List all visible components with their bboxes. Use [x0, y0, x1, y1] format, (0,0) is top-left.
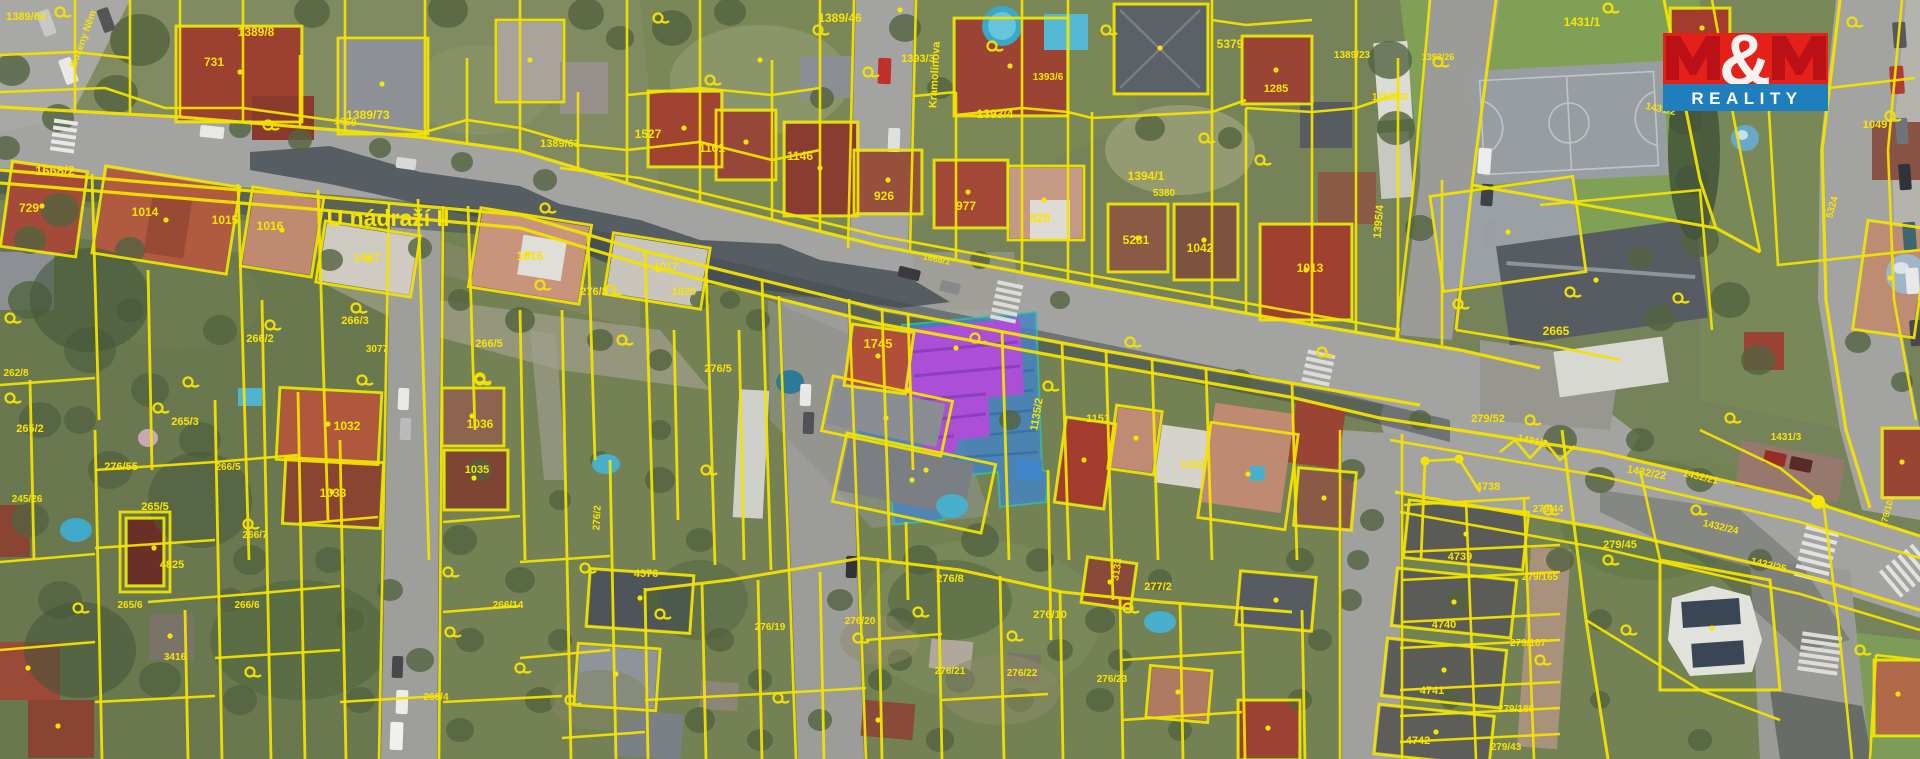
svg-text:1161: 1161	[699, 141, 725, 155]
svg-text:1015: 1015	[517, 249, 544, 263]
svg-text:1033: 1033	[320, 486, 347, 500]
svg-text:266/4: 266/4	[423, 692, 448, 703]
svg-text:276/22: 276/22	[1007, 668, 1038, 679]
svg-text:1049: 1049	[1863, 119, 1887, 131]
svg-text:1389/8: 1389/8	[238, 25, 275, 39]
svg-text:262/8: 262/8	[3, 368, 28, 379]
svg-text:265/6: 265/6	[117, 600, 142, 611]
svg-text:1394/1: 1394/1	[1128, 169, 1165, 183]
svg-text:926: 926	[874, 189, 894, 203]
svg-text:1389/23: 1389/23	[1334, 50, 1371, 61]
svg-text:1015: 1015	[212, 213, 239, 227]
svg-text:977: 977	[956, 199, 976, 213]
svg-text:1020: 1020	[672, 286, 696, 298]
svg-text:276/2: 276/2	[591, 505, 603, 531]
svg-text:REALITY: REALITY	[1691, 89, 1802, 108]
svg-text:266/7: 266/7	[242, 530, 267, 541]
svg-text:4376: 4376	[634, 568, 658, 580]
svg-text:1389/33: 1389/33	[1372, 92, 1409, 103]
svg-text:279/44: 279/44	[1533, 504, 1564, 515]
svg-text:1017: 1017	[654, 261, 678, 273]
svg-text:4740: 4740	[1432, 619, 1456, 631]
svg-text:279/165: 279/165	[1522, 572, 1559, 583]
svg-text:1389/64: 1389/64	[6, 11, 47, 23]
svg-text:277/2: 277/2	[1144, 581, 1172, 593]
svg-text:1393/26: 1393/26	[1422, 52, 1455, 62]
svg-text:1668/2: 1668/2	[35, 163, 75, 178]
svg-text:276/8: 276/8	[936, 573, 964, 585]
svg-text:1016: 1016	[257, 219, 284, 233]
svg-text:3416: 3416	[164, 652, 187, 663]
svg-text:1013: 1013	[1297, 261, 1324, 275]
svg-text:276/5: 276/5	[704, 363, 732, 375]
svg-text:266/3: 266/3	[341, 315, 369, 327]
svg-text:828: 828	[1030, 211, 1050, 225]
svg-text:1431/3: 1431/3	[1771, 432, 1802, 443]
svg-text:1393/6: 1393/6	[1033, 72, 1064, 83]
svg-text:1389/46: 1389/46	[818, 11, 862, 25]
svg-text:279/45: 279/45	[1603, 539, 1637, 551]
svg-text:U nádraží II: U nádraží II	[327, 205, 450, 231]
svg-text:245/26: 245/26	[12, 494, 43, 505]
svg-text:1745: 1745	[864, 336, 893, 351]
svg-text:276/3: 276/3	[580, 286, 608, 298]
svg-text:1389/63: 1389/63	[540, 138, 580, 150]
svg-text:1285: 1285	[1264, 83, 1288, 95]
svg-text:1042: 1042	[1187, 241, 1214, 255]
svg-text:276/19: 276/19	[755, 622, 786, 633]
svg-text:276/10: 276/10	[1033, 609, 1067, 621]
svg-text:1151: 1151	[1086, 413, 1110, 425]
svg-text:4825: 4825	[160, 559, 184, 571]
svg-text:1035: 1035	[465, 464, 489, 476]
svg-text:1032: 1032	[334, 419, 361, 433]
svg-text:1527: 1527	[635, 127, 662, 141]
svg-text:4742: 4742	[1406, 735, 1430, 747]
svg-text:731: 731	[204, 55, 224, 69]
svg-text:5281: 5281	[1123, 233, 1150, 247]
svg-text:1152: 1152	[1180, 459, 1204, 471]
svg-text:276/55: 276/55	[104, 461, 138, 473]
svg-text:266/6: 266/6	[234, 600, 259, 611]
svg-text:4739: 4739	[1448, 551, 1472, 563]
svg-text:279/189: 279/189	[1498, 704, 1535, 715]
svg-text:265/3: 265/3	[171, 416, 199, 428]
svg-text:4738: 4738	[1476, 481, 1500, 493]
svg-text:266/14: 266/14	[493, 600, 524, 611]
svg-text:265/5: 265/5	[141, 501, 169, 513]
svg-text:4741: 4741	[1420, 685, 1444, 697]
svg-text:5380: 5380	[1153, 188, 1176, 199]
svg-text:266/5: 266/5	[215, 462, 240, 473]
svg-text:1036: 1036	[467, 417, 494, 431]
svg-text:5379: 5379	[1217, 37, 1244, 51]
svg-text:279/187: 279/187	[1510, 638, 1547, 649]
svg-text:1393/4: 1393/4	[977, 107, 1014, 121]
svg-text:1146: 1146	[787, 149, 813, 163]
svg-text:276/20: 276/20	[845, 616, 876, 627]
svg-text:265/2: 265/2	[16, 423, 44, 435]
svg-text:729: 729	[19, 201, 39, 215]
svg-text:266/5: 266/5	[475, 338, 503, 350]
svg-text:3077: 3077	[366, 344, 389, 355]
svg-text:266/2: 266/2	[246, 333, 274, 345]
svg-text:279/43: 279/43	[1491, 742, 1522, 753]
svg-text:1017: 1017	[354, 251, 381, 265]
svg-text:279/52: 279/52	[1471, 413, 1505, 425]
svg-text:276/21: 276/21	[935, 666, 966, 677]
svg-text:1014: 1014	[132, 205, 159, 219]
svg-text:276/23: 276/23	[1097, 674, 1128, 685]
svg-text:2665: 2665	[1543, 324, 1570, 338]
svg-text:1431/1: 1431/1	[1564, 15, 1601, 29]
